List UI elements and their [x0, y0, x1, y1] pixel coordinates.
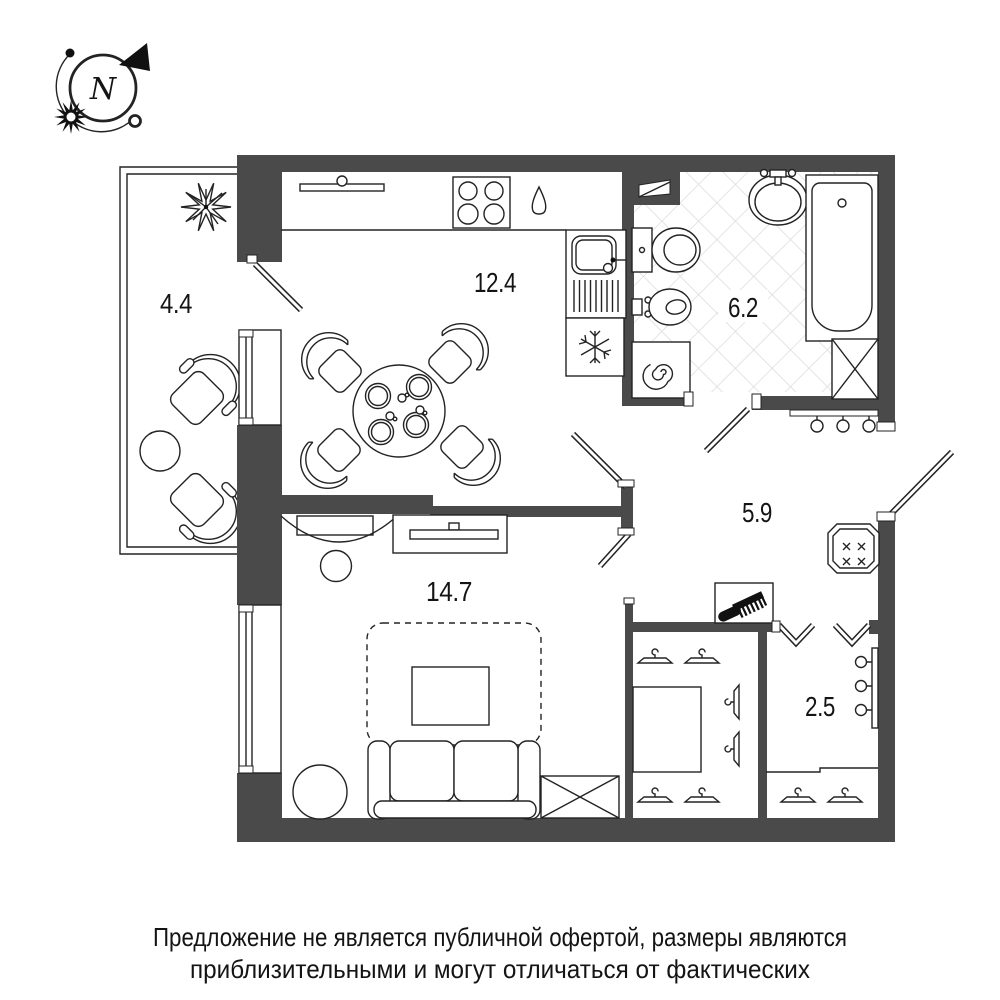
water-drop-icon	[532, 187, 546, 214]
living-room	[281, 515, 619, 819]
bifold-door-icon	[779, 625, 869, 643]
dining-set	[290, 313, 512, 500]
wall-right-upper	[878, 155, 895, 430]
comb-icon	[715, 583, 773, 627]
compass-icon: N	[54, 43, 150, 134]
clothes-hanger-icon	[781, 788, 815, 802]
wall-left-bottom	[237, 773, 282, 842]
wall-wardrobe-divider	[758, 630, 767, 818]
pillar-left-top	[237, 155, 282, 262]
toilet-icon	[632, 228, 700, 272]
door-post	[621, 483, 633, 533]
stove-burners-icon	[453, 177, 510, 228]
wall-hooks-icon	[856, 648, 879, 728]
wall-bottom	[237, 818, 895, 842]
compass-north-letter: N	[89, 72, 118, 107]
desk-icon	[281, 516, 397, 582]
window-icon	[239, 605, 281, 773]
bathtub-icon	[806, 175, 878, 341]
pouf-icon	[293, 765, 347, 819]
clothes-hanger-icon	[638, 788, 672, 802]
area-label-hallway: 5.9	[742, 497, 772, 528]
wall-wardrobe-stub	[625, 603, 633, 622]
electrical-panel-icon	[828, 524, 879, 573]
ventilation-shaft-icon	[541, 776, 619, 818]
snowflake-fridge-icon	[566, 318, 624, 376]
kitchen-sink-icon	[566, 230, 626, 318]
clothes-hanger-icon	[725, 685, 739, 719]
area-label-living: 14.7	[426, 576, 472, 607]
area-label-kitchen: 12.4	[474, 267, 516, 298]
towel-hooks-icon	[790, 410, 878, 432]
disclaimer-line-1: Предложение не является публичной оферто…	[153, 922, 847, 952]
clothes-hanger-icon	[685, 649, 719, 663]
shelf-unit	[633, 687, 701, 772]
vent-box-icon	[632, 172, 680, 205]
washing-machine-spiral-icon	[632, 342, 690, 398]
wall-living-dining	[237, 495, 433, 514]
area-label-wardrobe: 2.5	[805, 691, 835, 722]
door-leaf-icon	[573, 434, 626, 487]
area-label-bathroom: 6.2	[728, 292, 758, 323]
chair-icon	[431, 416, 512, 497]
sofa-icon	[368, 741, 540, 819]
window-icon	[239, 330, 281, 425]
hallway	[715, 410, 879, 627]
plant-icon	[181, 183, 231, 231]
coffee-table-icon	[412, 667, 489, 725]
door-leaf-icon	[706, 409, 748, 451]
wall-wardrobe-left	[625, 632, 633, 818]
disclaimer-line-2: приблизительными и могут отличаться от ф…	[190, 954, 810, 984]
balcony-table-icon	[140, 431, 180, 471]
door-leaf-icon	[255, 264, 301, 310]
disclaimer: Предложение не является публичной оферто…	[153, 922, 847, 984]
wall-top	[240, 155, 895, 172]
dining-table-icon	[353, 365, 445, 457]
clothes-hanger-icon	[725, 732, 739, 766]
clothes-hanger-icon	[638, 649, 672, 663]
clothes-hanger-icon	[685, 788, 719, 802]
hood-shelf-icon	[300, 176, 384, 191]
door-leaf-icon	[600, 534, 629, 566]
wardrobe	[633, 649, 739, 802]
wall-right-lower	[878, 515, 895, 842]
balcony	[120, 167, 256, 559]
tv-console-icon	[393, 515, 507, 553]
wall-left-mid	[237, 425, 282, 605]
closet	[766, 648, 878, 802]
ventilation-shaft-icon	[832, 339, 878, 399]
area-label-balcony: 4.4	[160, 288, 192, 319]
floor-plan-page: 4.4 12.4 6.2 5.9 14.7 2.5 N Предложение …	[0, 0, 1000, 1000]
clothes-hanger-icon	[828, 788, 862, 802]
closet-divider-line	[766, 768, 878, 772]
floor-plan-svg: 4.4 12.4 6.2 5.9 14.7 2.5 N Предложение …	[0, 0, 1000, 1000]
stool-icon	[321, 551, 352, 582]
entrance-door-leaf-icon	[888, 452, 952, 517]
